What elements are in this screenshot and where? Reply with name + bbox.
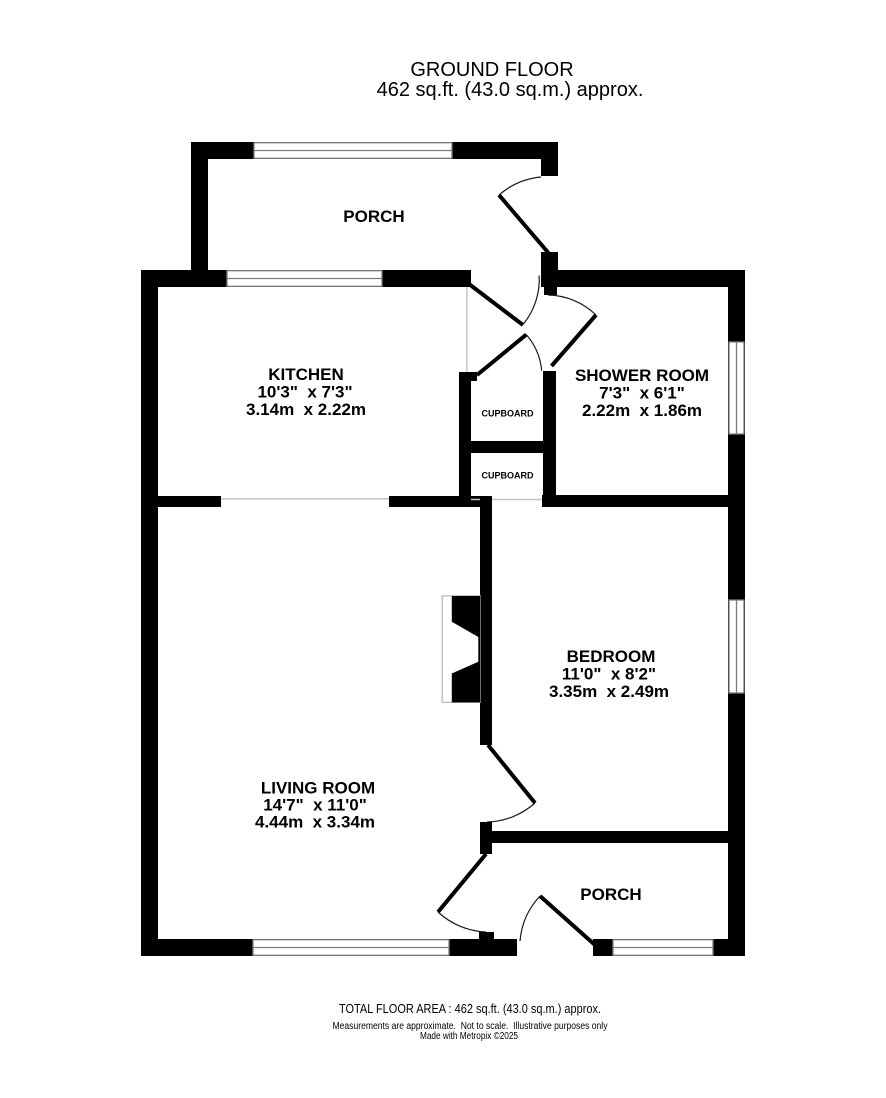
svg-text:11'0" x 8'2": 11'0" x 8'2" [562, 665, 656, 684]
svg-text:KITCHEN: KITCHEN [268, 365, 344, 384]
svg-text:PORCH: PORCH [343, 207, 404, 226]
svg-text:SHOWER ROOM: SHOWER ROOM [575, 366, 709, 385]
svg-text:3.14m x 2.22m: 3.14m x 2.22m [246, 400, 366, 419]
svg-text:CUPBOARD: CUPBOARD [481, 471, 534, 481]
svg-text:CUPBOARD: CUPBOARD [481, 409, 534, 419]
svg-text:PORCH: PORCH [580, 885, 641, 904]
svg-text:Made with Metropix ©2025: Made with Metropix ©2025 [420, 1031, 518, 1042]
svg-text:4.44m x 3.34m: 4.44m x 3.34m [255, 813, 375, 832]
svg-text:2.22m x 1.86m: 2.22m x 1.86m [582, 401, 702, 420]
svg-text:3.35m x 2.49m: 3.35m x 2.49m [549, 682, 669, 701]
svg-text:BEDROOM: BEDROOM [567, 647, 656, 666]
svg-text:10'3" x 7'3": 10'3" x 7'3" [257, 383, 352, 402]
svg-text:TOTAL FLOOR AREA : 462 sq.ft.: TOTAL FLOOR AREA : 462 sq.ft. (43.0 sq.m… [339, 1001, 601, 1016]
svg-text:462 sq.ft. (43.0 sq.m.) approx: 462 sq.ft. (43.0 sq.m.) approx. [377, 79, 644, 101]
svg-text:7'3" x 6'1": 7'3" x 6'1" [599, 384, 685, 403]
svg-text:GROUND FLOOR: GROUND FLOOR [410, 59, 573, 81]
